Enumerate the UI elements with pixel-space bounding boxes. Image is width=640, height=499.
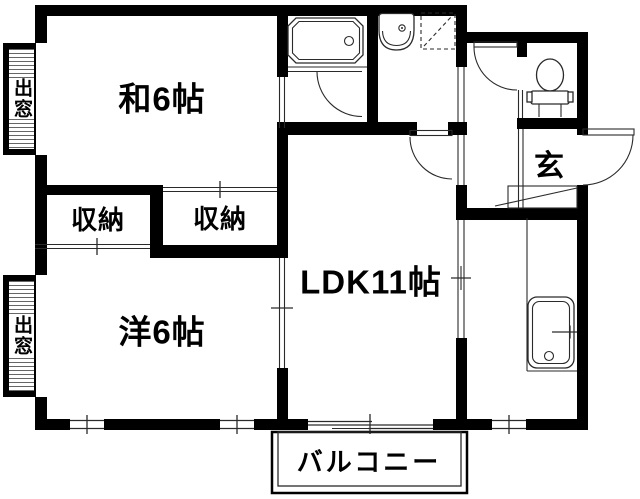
youshitsu-sliding-door	[271, 258, 293, 368]
closet-right-sliding-door	[163, 181, 277, 198]
floor-plan: 出窓 出窓 和6帖 収納 収納 洋6帖 LDK11帖 玄 バルコニー	[0, 0, 640, 499]
entrance-door-arc	[583, 129, 634, 185]
bath-door-arc	[288, 67, 367, 117]
entrance-step	[495, 186, 577, 208]
bay-window-glass-icon	[9, 358, 34, 391]
room-label-closet-left: 収納	[71, 207, 125, 233]
floor-plan-drawing	[0, 0, 640, 499]
room-label-closet-right: 収納	[193, 206, 247, 232]
kitchen-opening	[451, 220, 471, 338]
bay-window-top: 出窓	[3, 43, 36, 155]
hall-ldk-doorway	[458, 135, 464, 185]
bay-window-glass-icon	[9, 281, 34, 314]
bay-window-glass-icon	[9, 119, 34, 149]
washroom-door-arc	[410, 131, 452, 180]
room-label-ldk: LDK11帖	[300, 266, 442, 299]
washroom-side-opening	[458, 67, 464, 122]
washing-machine-space-icon	[421, 13, 455, 49]
bay-window-label: 出窓	[12, 315, 31, 357]
room-label-washitsu: 和6帖	[118, 83, 205, 116]
bay-window-label: 出窓	[12, 78, 31, 120]
toilet-icon	[527, 59, 573, 117]
room-label-genkan: 玄	[534, 152, 564, 182]
toilet-door-arc	[474, 42, 517, 90]
genkan-divider	[519, 129, 524, 208]
washbasin-icon	[379, 14, 414, 51]
kitchen-sink-icon	[528, 297, 577, 368]
bay-window-glass-icon	[9, 49, 34, 79]
bathtub-icon	[288, 18, 363, 63]
room-label-youshitsu: 洋6帖	[118, 316, 205, 349]
toilet-thin-wall	[519, 90, 523, 118]
closet-left-sliding-door	[35, 238, 150, 255]
bay-window-bottom: 出窓	[3, 275, 36, 397]
room-label-balcony: バルコニー	[297, 449, 441, 475]
washitsu-side-opening	[280, 77, 285, 128]
